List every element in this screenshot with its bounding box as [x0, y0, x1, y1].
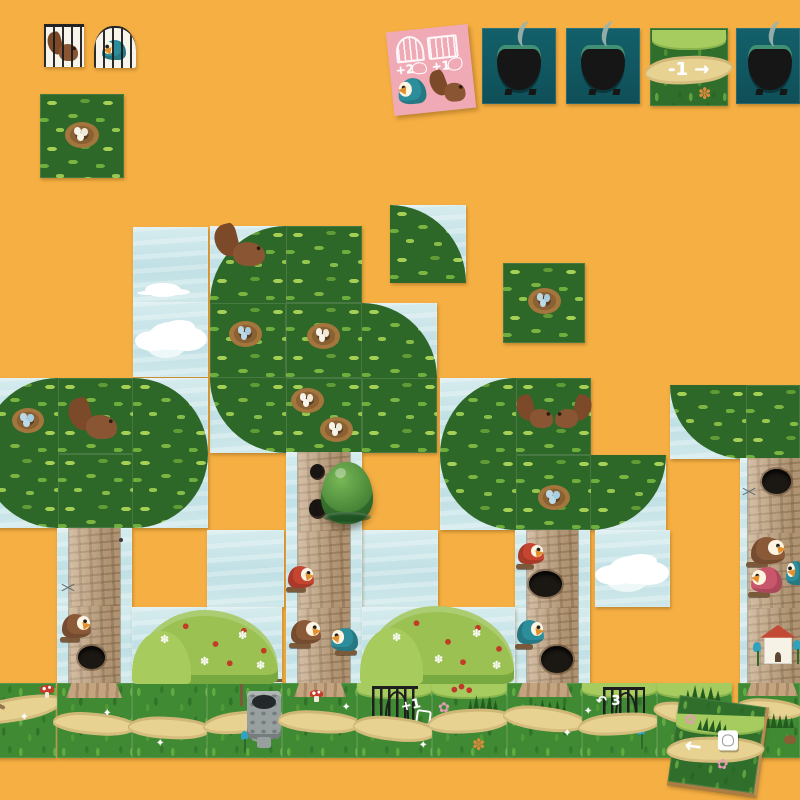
- nest-blue-icon: [528, 288, 561, 314]
- bird-blue-icon: [786, 561, 800, 585]
- score-card[interactable]: +2+1: [386, 24, 476, 116]
- sparkle-icon: [156, 731, 166, 741]
- far-right-tree-corner[interactable]: [670, 385, 746, 459]
- center-tree-leaf-br[interactable]: [362, 378, 437, 453]
- path-icon: [52, 709, 138, 738]
- house-icon: [764, 636, 792, 664]
- flower-orange-icon: [472, 735, 490, 753]
- nest-blue-icon: [12, 408, 44, 433]
- bird-pink-icon: [751, 567, 782, 593]
- bushflower-icon: [200, 650, 211, 661]
- cauldron-tile-3[interactable]: [736, 28, 800, 104]
- nest-white-icon: [320, 417, 353, 442]
- flower-pink-icon: [716, 753, 736, 773]
- tulip-icon: [792, 640, 800, 664]
- move-one-path-tile[interactable]: -1 →: [650, 28, 728, 106]
- sparkle-icon: [563, 721, 573, 731]
- center-tree-leaf-corner-bl[interactable]: [210, 378, 286, 453]
- far-right-trunk-birdhouse-tile[interactable]: [740, 608, 800, 683]
- caged-squirrel-tile[interactable]: [44, 24, 84, 67]
- bird-red-icon: [518, 543, 544, 564]
- left-tree-leaf[interactable]: [58, 454, 133, 528]
- hole-icon: [529, 571, 562, 597]
- bird-blue-icon: [102, 40, 126, 60]
- squirrel-icon: [554, 398, 590, 428]
- bird-tuft-icon: [751, 537, 785, 564]
- sparkle-icon: [342, 695, 352, 705]
- spare-leaf-nest-blue-tile[interactable]: [503, 263, 585, 343]
- nest-white-icon: [65, 122, 99, 148]
- chalksquirrel-icon: [447, 57, 463, 71]
- center-tree-leaf-corner[interactable]: [362, 303, 437, 378]
- bird-blue-icon: [397, 77, 428, 106]
- die-icon: [718, 730, 738, 750]
- tulip-icon: [240, 731, 249, 753]
- bird-red-icon: [288, 566, 314, 588]
- squirrel-icon: [518, 398, 554, 428]
- squirrel-icon: [70, 402, 118, 439]
- grass-path-tile-2[interactable]: [132, 683, 207, 758]
- bird-brown-icon: [291, 620, 321, 644]
- cloud-tile[interactable]: [133, 302, 208, 377]
- left-tree-leaf-corner-br[interactable]: [133, 454, 208, 528]
- game-board: +2+1-1 →+1↶ 3←: [0, 0, 800, 800]
- center-trunk-two-birds-tile[interactable]: [286, 608, 362, 683]
- path-icon: [127, 715, 212, 741]
- trunkbase-icon: [517, 683, 572, 697]
- grass-trunkbase-tile-2[interactable]: [282, 683, 357, 758]
- nest-blue-icon: [538, 485, 570, 510]
- bushflower-icon: [256, 654, 267, 665]
- cloud-tile-right[interactable]: [595, 530, 670, 607]
- sparkle-icon: [584, 699, 594, 709]
- player-pawn[interactable]: [321, 462, 373, 524]
- hole-icon: [541, 646, 573, 673]
- right-tree-leaf-corner-br[interactable]: [591, 455, 666, 530]
- chalk-label: +2: [395, 63, 412, 77]
- grass-well-tile[interactable]: [207, 683, 282, 758]
- grass-trunkbase-tile-1[interactable]: [57, 683, 132, 758]
- grass-path-tile-1[interactable]: [0, 683, 56, 758]
- flower-orange-icon: [698, 84, 714, 100]
- spare-leaf-nest-tile[interactable]: [40, 94, 124, 178]
- grassband-icon: [652, 30, 726, 50]
- center-tree-leaf[interactable]: [286, 226, 362, 303]
- squirrel-icon: [216, 228, 266, 266]
- cloud-icon: [149, 322, 193, 350]
- left-tree-leaf-corner-nest[interactable]: [0, 378, 58, 454]
- chalkbird-icon: [411, 61, 427, 75]
- far-right-trunk-birds-tile[interactable]: [740, 533, 800, 608]
- center-trunk-red-bird-tile[interactable]: [286, 531, 362, 608]
- bushflower-icon: [160, 628, 171, 639]
- right-tree-leaf-corner-tl[interactable]: [440, 378, 516, 455]
- can-icon: [257, 737, 271, 748]
- mushroom-icon: [310, 690, 323, 702]
- berries-icon: [450, 683, 474, 695]
- bushflower-icon: [472, 622, 483, 633]
- spare-corner-leaf-tile[interactable]: [390, 205, 466, 283]
- left-tree-leaf-corner-tr[interactable]: [133, 378, 208, 454]
- sky-tile-left-of-trunk[interactable]: [207, 530, 284, 607]
- chalk-label: ↶ 3: [596, 695, 622, 709]
- chalk-label: ←: [684, 734, 713, 757]
- bushflower-icon: [238, 624, 249, 635]
- bird-blue-icon: [331, 628, 358, 651]
- sparkle-icon: [103, 701, 113, 711]
- flower-pink-icon: [684, 708, 700, 724]
- mushroom-icon: [40, 685, 54, 698]
- dragonfly-icon: [742, 486, 756, 496]
- chalkcage-square-icon: [427, 34, 459, 60]
- bushflower-icon: [434, 648, 445, 659]
- cauldron-tile-1[interactable]: [482, 28, 556, 104]
- squirrel-icon: [49, 35, 79, 61]
- tilted-arrow-tile[interactable]: ←: [667, 695, 769, 798]
- cauldron-tile-2[interactable]: [566, 28, 640, 104]
- center-tree-leaf-nest-white[interactable]: [286, 303, 362, 378]
- left-trunk-tile[interactable]: [57, 528, 132, 606]
- trunkbase-icon: [746, 683, 798, 696]
- nest-white-icon: [307, 323, 340, 349]
- grass-gate-tile-2[interactable]: ↶ 3: [582, 683, 657, 758]
- right-tree-leaf-squirrel-pair[interactable]: [516, 378, 591, 455]
- center-tree-leaf-corner-squirrel[interactable]: [210, 226, 286, 303]
- left-tree-leaf-squirrel[interactable]: [58, 378, 133, 454]
- trunkbase-icon: [66, 683, 122, 698]
- dragonfly-icon: [61, 582, 75, 592]
- bird-blue-icon: [517, 620, 544, 644]
- bushflower-icon: [392, 626, 403, 637]
- branch-icon: [516, 564, 534, 569]
- path-icon: [667, 737, 765, 763]
- nest-white-icon: [291, 388, 324, 413]
- right-tree-leaf-corner-bl[interactable]: [440, 455, 516, 530]
- hole-icon: [78, 646, 105, 669]
- far-right-trunk-hole-tile[interactable]: [740, 458, 800, 533]
- grass-trunkbase-tile-3[interactable]: [507, 683, 582, 758]
- sky-tile-mid[interactable]: [362, 530, 438, 607]
- acorn-icon: [784, 735, 796, 744]
- caged-bird-tile[interactable]: [94, 26, 136, 68]
- cloud-sm-icon: [145, 283, 181, 297]
- right-trunk-blue-bird-tile[interactable]: [515, 608, 590, 683]
- sparkle-icon: [419, 733, 429, 743]
- grass-gate-tile-1[interactable]: +1: [357, 683, 432, 758]
- bushflower-icon: [492, 654, 503, 665]
- nest-blue-icon: [229, 321, 262, 347]
- bird-brown-icon: [62, 614, 91, 638]
- tulip-icon: [752, 642, 762, 666]
- well-icon: [247, 691, 281, 739]
- cauldron-icon: [748, 45, 792, 90]
- left-tree-leaf-corner-bl[interactable]: [0, 454, 58, 528]
- center-tree-leaf-two-nests[interactable]: [286, 378, 362, 453]
- hole-icon: [762, 469, 791, 494]
- sky-tile[interactable]: [133, 227, 208, 302]
- chalk-label: -1 →: [668, 61, 712, 81]
- center-tree-leaf-nest-blue[interactable]: [210, 303, 286, 378]
- left-trunk-bird-hole-tile[interactable]: [57, 606, 132, 683]
- chalkcage-dome-icon: [394, 35, 425, 64]
- knot-icon: [310, 464, 325, 480]
- branch-icon: [515, 644, 533, 649]
- cauldron-icon: [497, 45, 541, 90]
- fly-icon: [119, 538, 123, 542]
- cloud-icon: [609, 556, 655, 584]
- right-tree-leaf-nest-blue[interactable]: [516, 455, 591, 530]
- squirrel-icon: [430, 71, 467, 104]
- grass-flowers-tile[interactable]: [432, 683, 507, 758]
- sparkle-icon: [20, 705, 30, 715]
- path-icon: [502, 702, 588, 736]
- cauldron-icon: [581, 45, 625, 90]
- far-right-tree-leaf[interactable]: [746, 385, 800, 459]
- right-trunk-red-bird-tile[interactable]: [515, 530, 590, 608]
